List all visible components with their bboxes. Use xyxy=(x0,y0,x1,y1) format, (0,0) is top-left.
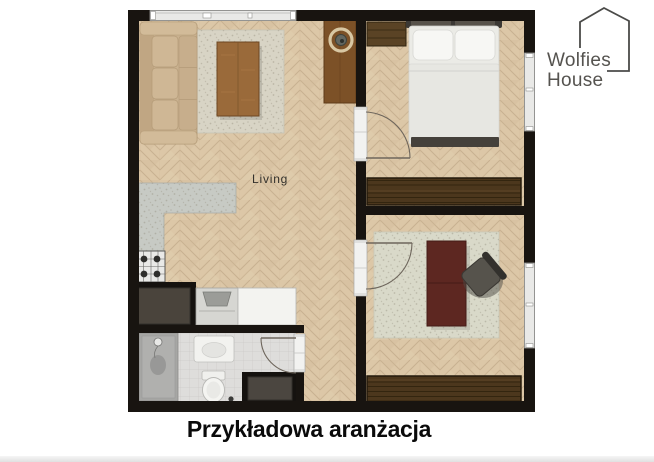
floor-drain-icon xyxy=(228,396,233,401)
pillow xyxy=(455,30,495,60)
logo-line2: House xyxy=(547,71,611,91)
desk xyxy=(427,241,470,330)
wall-bedroom-office xyxy=(356,206,535,215)
screenshot: Living xyxy=(0,0,654,462)
office xyxy=(367,232,521,403)
washer-niche xyxy=(242,372,298,403)
washbasin xyxy=(194,336,234,362)
coffee-table xyxy=(217,42,262,120)
shower xyxy=(139,333,178,401)
double-bed xyxy=(406,15,502,147)
office-wardrobe xyxy=(367,376,521,403)
caption: Przykładowa aranżacja xyxy=(0,416,654,443)
wall-divider-v-mid xyxy=(356,161,366,240)
sofa xyxy=(140,22,197,144)
white-counter xyxy=(238,288,296,325)
logo-line1: Wolfies xyxy=(547,51,611,71)
wall-bathroom-top xyxy=(128,325,304,333)
wall-bathroom-right xyxy=(296,372,304,401)
window-bedroom-right xyxy=(525,53,535,131)
stove xyxy=(136,251,165,282)
logo: Wolfies House xyxy=(547,51,611,91)
wall-left xyxy=(128,10,139,412)
pillow xyxy=(413,30,453,60)
bathroom xyxy=(139,333,298,403)
duvet xyxy=(409,64,499,144)
console-with-round-decor xyxy=(324,20,356,103)
footboard xyxy=(411,137,499,147)
window-office-right xyxy=(525,263,535,348)
bedroom-wardrobe xyxy=(367,178,521,205)
wall-divider-v-bottom xyxy=(356,296,366,401)
living-room-label: Living xyxy=(252,172,288,186)
sink-cabinet xyxy=(196,288,238,325)
wall-bottom xyxy=(128,401,535,412)
wall-divider-v-top xyxy=(356,10,366,107)
shower-head-icon xyxy=(154,338,162,346)
toilet xyxy=(202,371,225,403)
bottom-edge-divider xyxy=(0,456,654,462)
window-living-top xyxy=(150,11,296,21)
bedside-dresser xyxy=(367,22,406,46)
